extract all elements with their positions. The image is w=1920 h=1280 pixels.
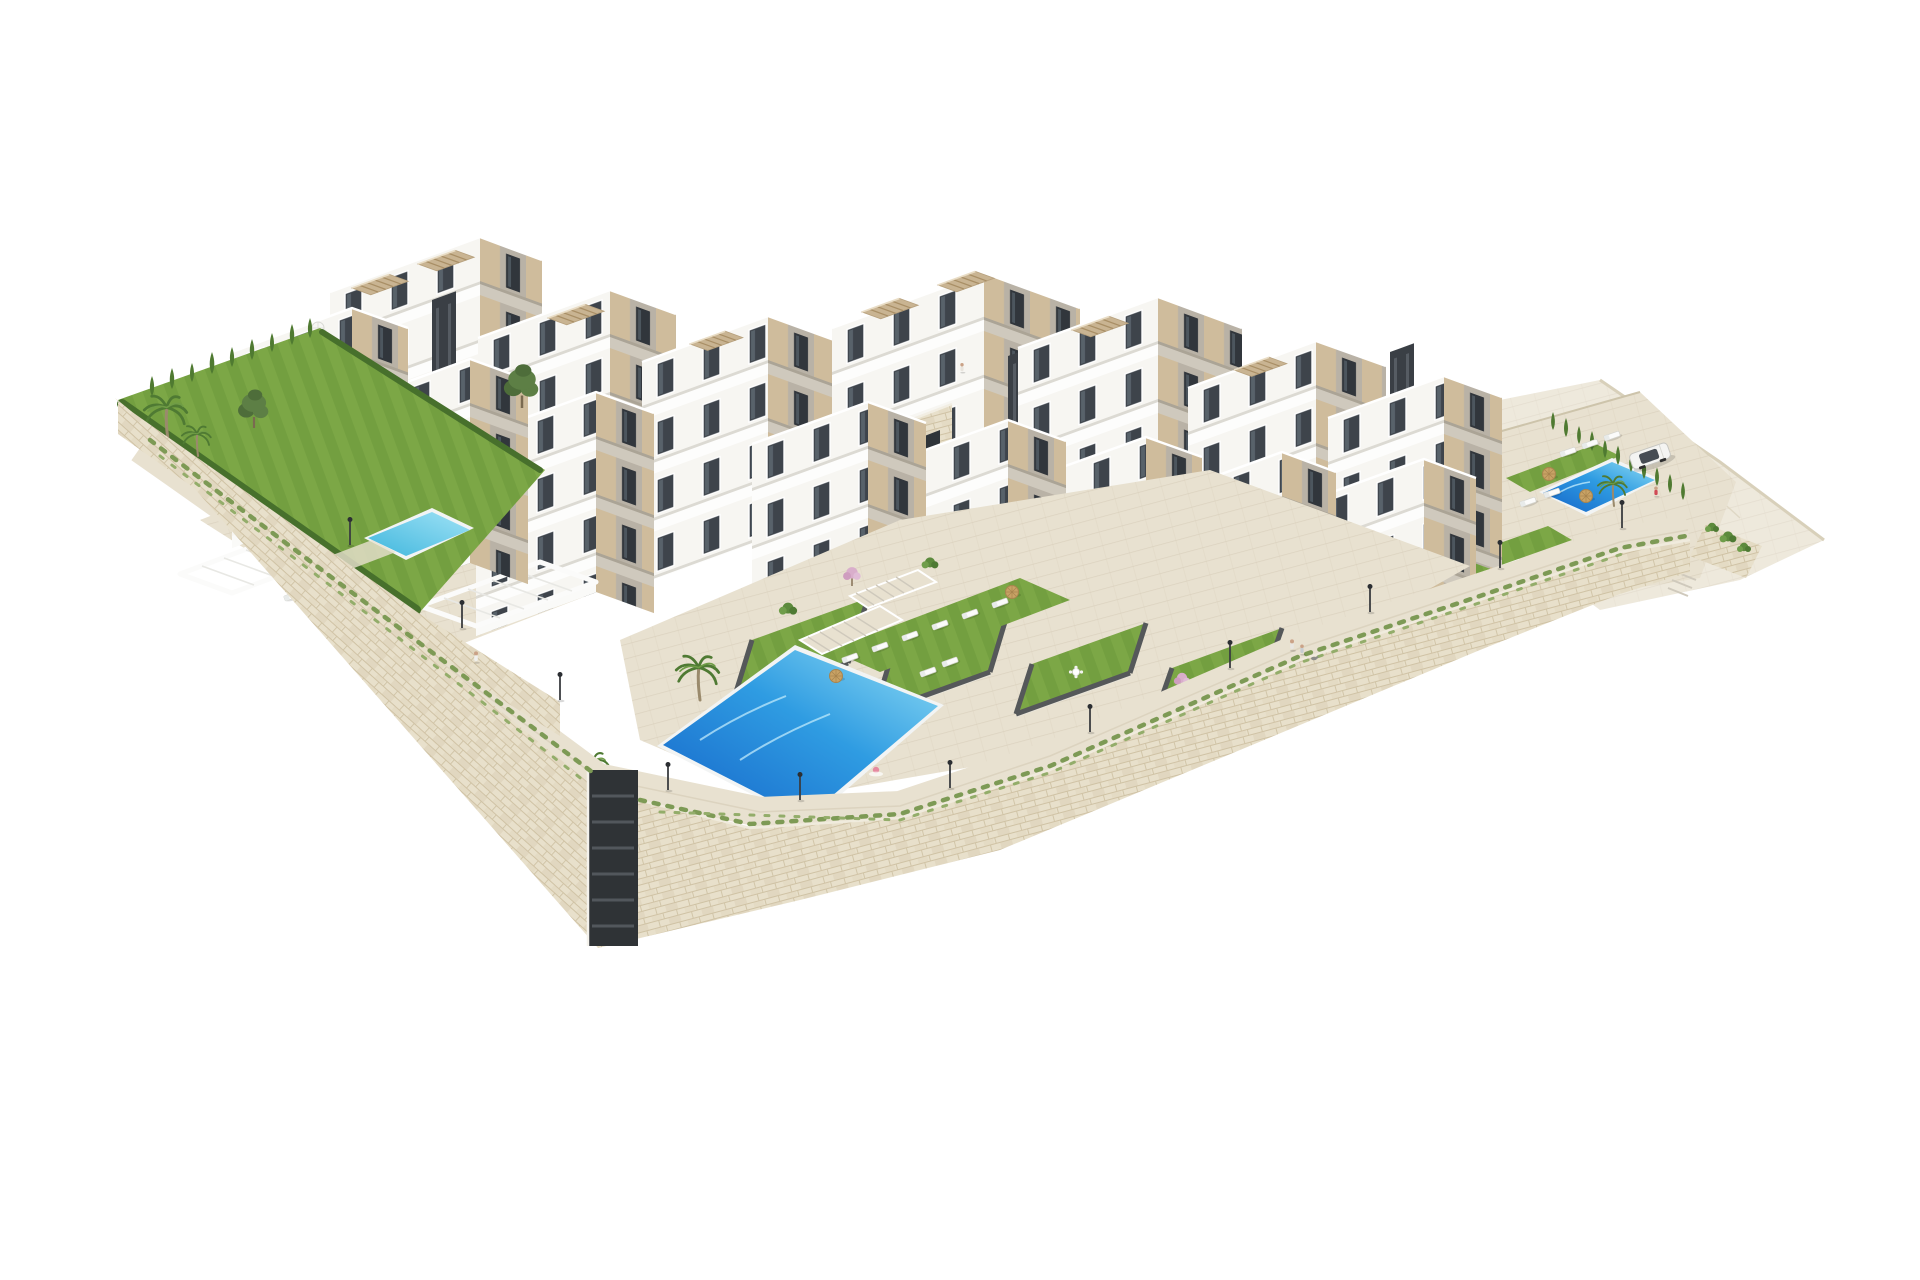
architectural-render [0, 0, 1920, 1280]
lamppost [558, 672, 565, 702]
stair-shaft [588, 770, 638, 946]
render-canvas [0, 0, 1920, 1280]
